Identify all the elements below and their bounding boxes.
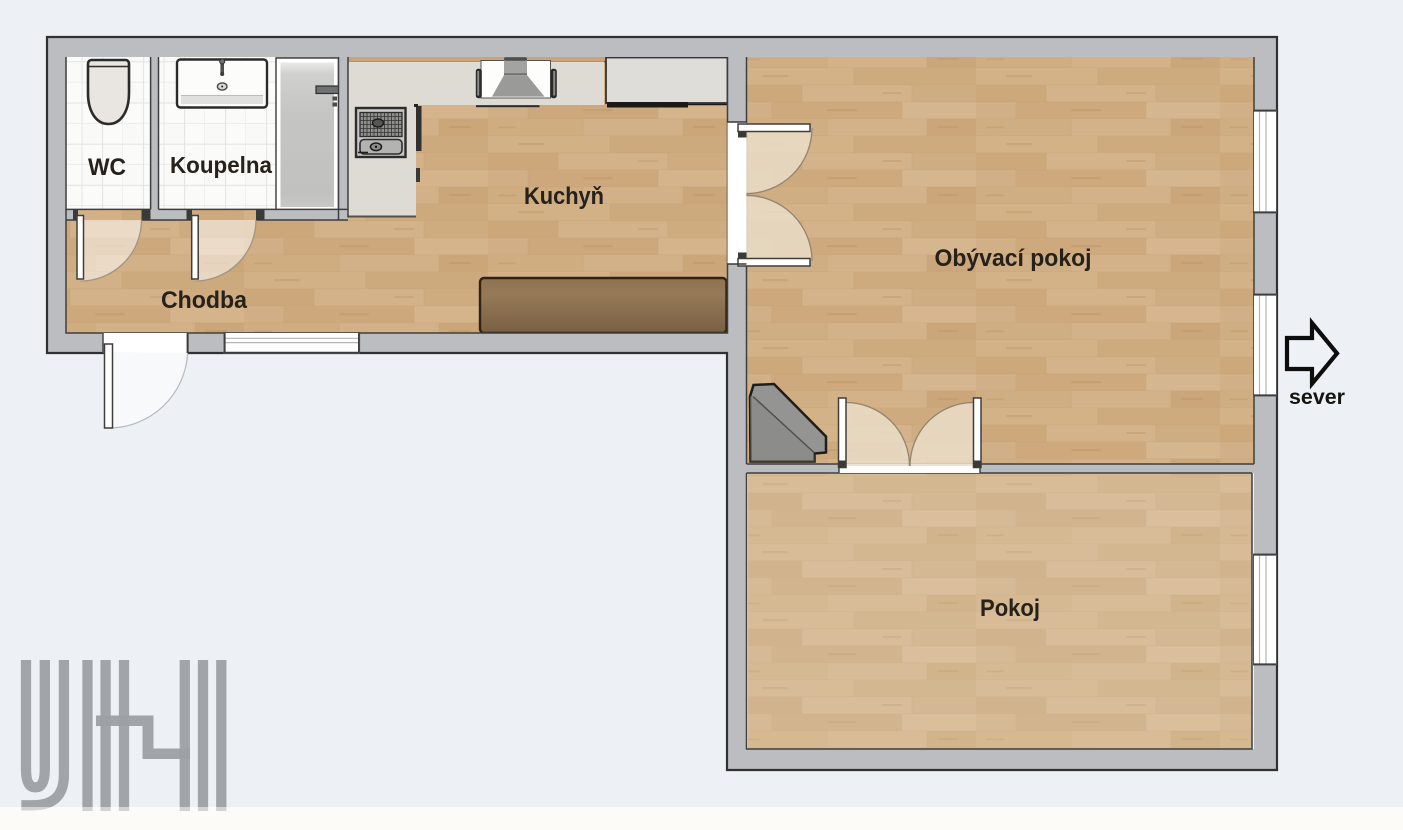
svg-text:Chodba: Chodba xyxy=(161,287,248,314)
svg-text:WC: WC xyxy=(88,154,126,181)
svg-text:Pokoj: Pokoj xyxy=(980,595,1040,622)
svg-text:Koupelna: Koupelna xyxy=(170,152,273,178)
svg-text:Obývací pokoj: Obývací pokoj xyxy=(935,245,1092,272)
svg-text:sever: sever xyxy=(1289,386,1345,409)
svg-text:Kuchyň: Kuchyň xyxy=(524,183,604,210)
